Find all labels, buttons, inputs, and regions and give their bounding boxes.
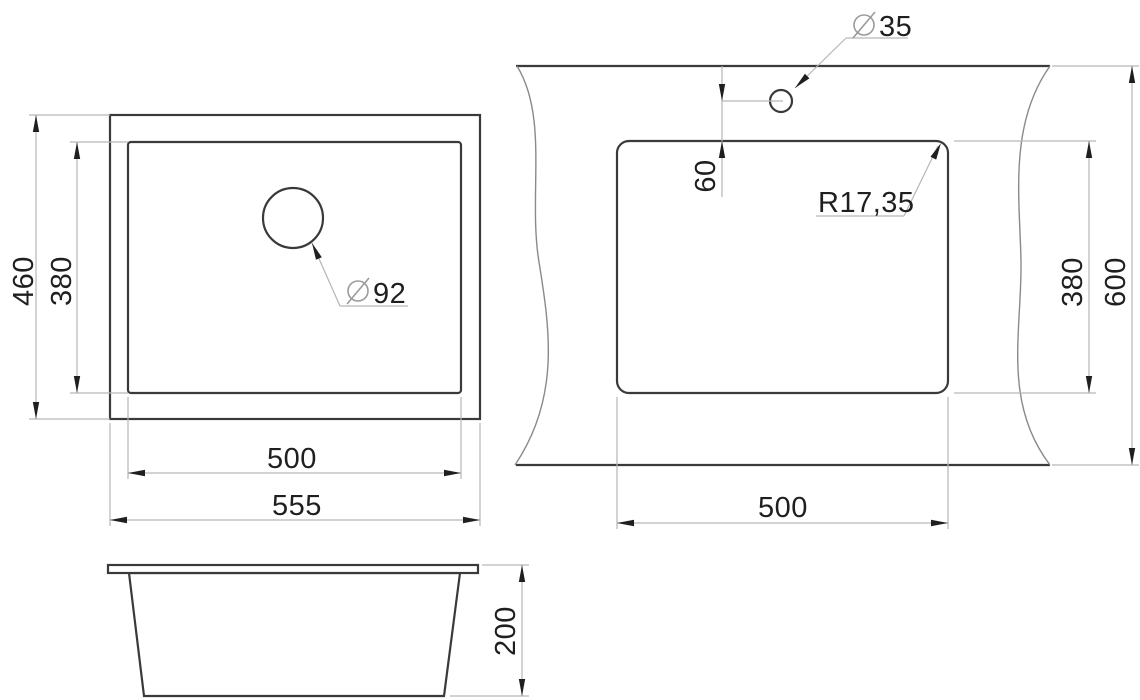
plan-inner-bowl (128, 142, 461, 393)
corner-radius-label: R17,35 (818, 187, 915, 219)
arrowhead-down-icon (519, 679, 525, 696)
plan-dim-inner-height: 380 (46, 142, 128, 393)
front-rim-flange (108, 565, 478, 573)
sink-technical-drawing: 460 380 500 555 (0, 0, 1140, 700)
arrowhead-right-icon (444, 470, 461, 476)
arrowhead-up-icon (1086, 141, 1092, 158)
faucet-hole-callout: 35 (795, 11, 912, 88)
arrowhead-up-icon (719, 141, 725, 158)
arrowhead-up-icon (1129, 66, 1135, 83)
plan-drain-hole (263, 188, 323, 248)
dimension-label: 60 (690, 159, 722, 192)
front-body (129, 573, 460, 696)
dimension-label: 555 (272, 490, 322, 522)
cutout-opening (617, 141, 948, 393)
corner-radius-callout: R17,35 (816, 143, 941, 219)
cutout-view: 60 35 R17,35 380 (515, 11, 1139, 529)
arrowhead-down-icon (719, 84, 725, 101)
break-line-left (515, 66, 548, 465)
arrowhead-down-icon (74, 376, 80, 393)
arrowhead-down-icon (33, 402, 39, 419)
arrowhead-up-icon (74, 142, 80, 159)
front-view: 200 (108, 565, 529, 696)
arrowhead-right-icon (931, 520, 948, 526)
plan-view: 460 380 500 555 (8, 115, 480, 526)
arrowhead-up-icon (33, 115, 39, 132)
arrowhead-left-icon (110, 517, 127, 523)
drawing-svg: 460 380 500 555 (0, 0, 1140, 700)
arrowhead-left-icon (617, 520, 634, 526)
arrowhead-right-icon (463, 517, 480, 523)
dimension-label: 380 (46, 256, 78, 306)
dimension-label: 600 (1100, 257, 1132, 307)
dimension-label: 500 (267, 443, 317, 475)
diameter-symbol-icon (347, 278, 369, 304)
arrowhead-icon (931, 143, 942, 160)
arrowhead-icon (312, 243, 322, 260)
diameter-symbol-icon (853, 12, 875, 38)
dimension-label: 460 (8, 256, 40, 306)
arrowhead-down-icon (1129, 448, 1135, 465)
cutout-dim-hole-offset: 60 (690, 66, 725, 197)
cutout-dim-height: 380 (954, 141, 1096, 393)
arrowhead-left-icon (128, 470, 145, 476)
plan-drain-callout: 92 (312, 243, 408, 310)
front-dim-height: 200 (450, 565, 529, 696)
dimension-label: 500 (758, 492, 808, 524)
arrowhead-down-icon (1086, 376, 1092, 393)
drain-diameter-label: 92 (373, 278, 406, 310)
plan-dim-inner-width: 500 (128, 397, 461, 479)
arrowhead-up-icon (519, 565, 525, 582)
dimension-label: 380 (1057, 257, 1089, 307)
dimension-label: 200 (490, 606, 522, 656)
cutout-dim-width: 500 (617, 397, 948, 529)
plan-outer-rim (110, 115, 480, 419)
faucet-diameter-label: 35 (879, 11, 912, 43)
break-line-right (1018, 66, 1050, 465)
